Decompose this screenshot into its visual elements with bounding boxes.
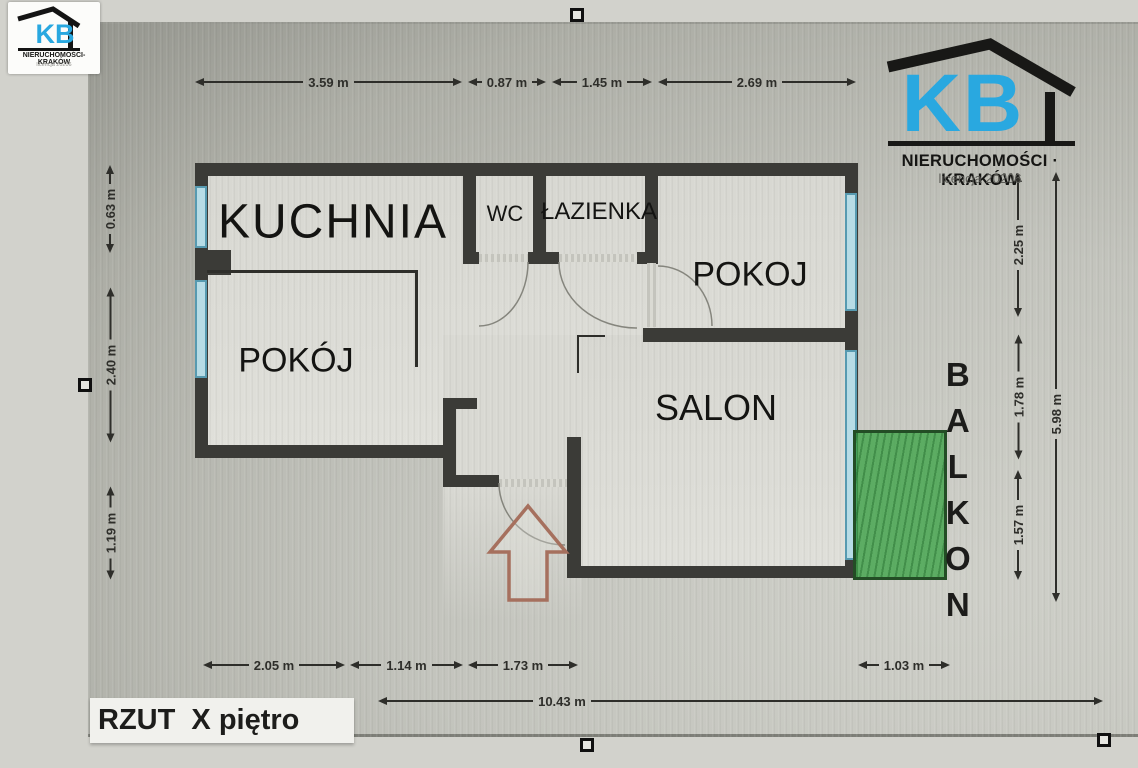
kb-logo-large-license: licencja 20206 [868,171,1092,186]
plan-caption: RZUT X piętro [90,698,354,743]
wall-room-salon [643,328,858,342]
dimension-right-total: 5.98 m [1048,172,1064,602]
kb-logo-small: KB NIERUCHOMOŚCI-KRAKÓW licencja 20206 [8,2,100,74]
dimension-top-3: 1.45 m [552,74,652,90]
dimension-bottom-3: 1.73 m [468,657,578,673]
selection-handle-bottom[interactable] [580,738,594,752]
dimension-bottom-1: 2.05 m [203,657,345,673]
dimension-bottom-4: 1.03 m [858,657,950,673]
dimension-top-2: 0.87 m [468,74,546,90]
plan-caption-text: RZUT X piętro [98,704,299,737]
room-label-wc: WC [487,201,524,227]
room-label-room-left: POKÓJ [238,342,353,381]
kb-logo-large: KB NIERUCHOMOŚCI · KRAKÓW licencja 20206 [868,28,1092,193]
kb-logo-small-initials: KB [20,20,90,48]
wall-outer-top [195,163,858,176]
dimension-right-1: 2.25 m [1010,173,1026,317]
door-threshold-wc [479,254,528,262]
door-threshold-entry [499,479,567,487]
room-label-room-right: POKOJ [692,256,807,295]
room-label-living-room: SALON [655,387,777,429]
dimension-right-3: 1.57 m [1010,470,1026,580]
wall-hall-left [443,398,456,487]
dimension-left-3: 1.19 m [103,487,119,580]
kb-logo-small-license: licencja 20206 [8,62,100,68]
salon-corner-mark-v [577,335,579,373]
selection-handle-top[interactable] [570,8,584,22]
window-kitchen [195,186,207,248]
balcony-area [853,430,947,580]
floorplan-page: KUCHNIA WC ŁAZIENKA POKOJ POKÓJ SALON B … [0,0,1138,768]
dimension-bottom-2: 1.14 m [350,657,463,673]
door-threshold-room-right [647,263,656,327]
dimension-right-2: 1.78 m [1011,335,1027,460]
wall-wc-bottom-b [528,252,559,264]
dimension-top-4: 2.69 m [658,74,856,90]
wall-room-left-bottom [195,445,456,458]
dimension-left-1: 0.63 m [102,165,118,253]
kitchen-annex-line-v [415,270,418,367]
selection-handle-left[interactable] [78,378,92,392]
window-room-right [845,193,857,311]
dimension-bottom-total: 10.43 m [378,693,1103,709]
dimension-left-2: 2.40 m [103,288,119,443]
floor-area-salon [567,335,858,578]
kitchen-annex-line-h [207,270,417,273]
room-label-bathroom: ŁAZIENKA [541,198,657,226]
door-threshold-bathroom [559,254,637,262]
room-label-kitchen: KUCHNIA [218,195,448,250]
room-label-balcony: B A L K O N [945,352,971,628]
window-room-left [195,280,207,378]
wall-entry-left [443,475,499,487]
wall-kitchen-wc [463,163,476,263]
dimension-top-1: 3.59 m [195,74,462,90]
kb-logo-large-initials: KB [883,64,1043,144]
wall-entry-jamb [567,437,581,578]
wall-hall-stub [443,398,477,409]
salon-corner-mark-h [577,335,605,337]
selection-handle-bottom-right[interactable] [1097,733,1111,747]
wall-wc-bottom-a [463,252,479,264]
wall-salon-bottom [567,566,858,578]
